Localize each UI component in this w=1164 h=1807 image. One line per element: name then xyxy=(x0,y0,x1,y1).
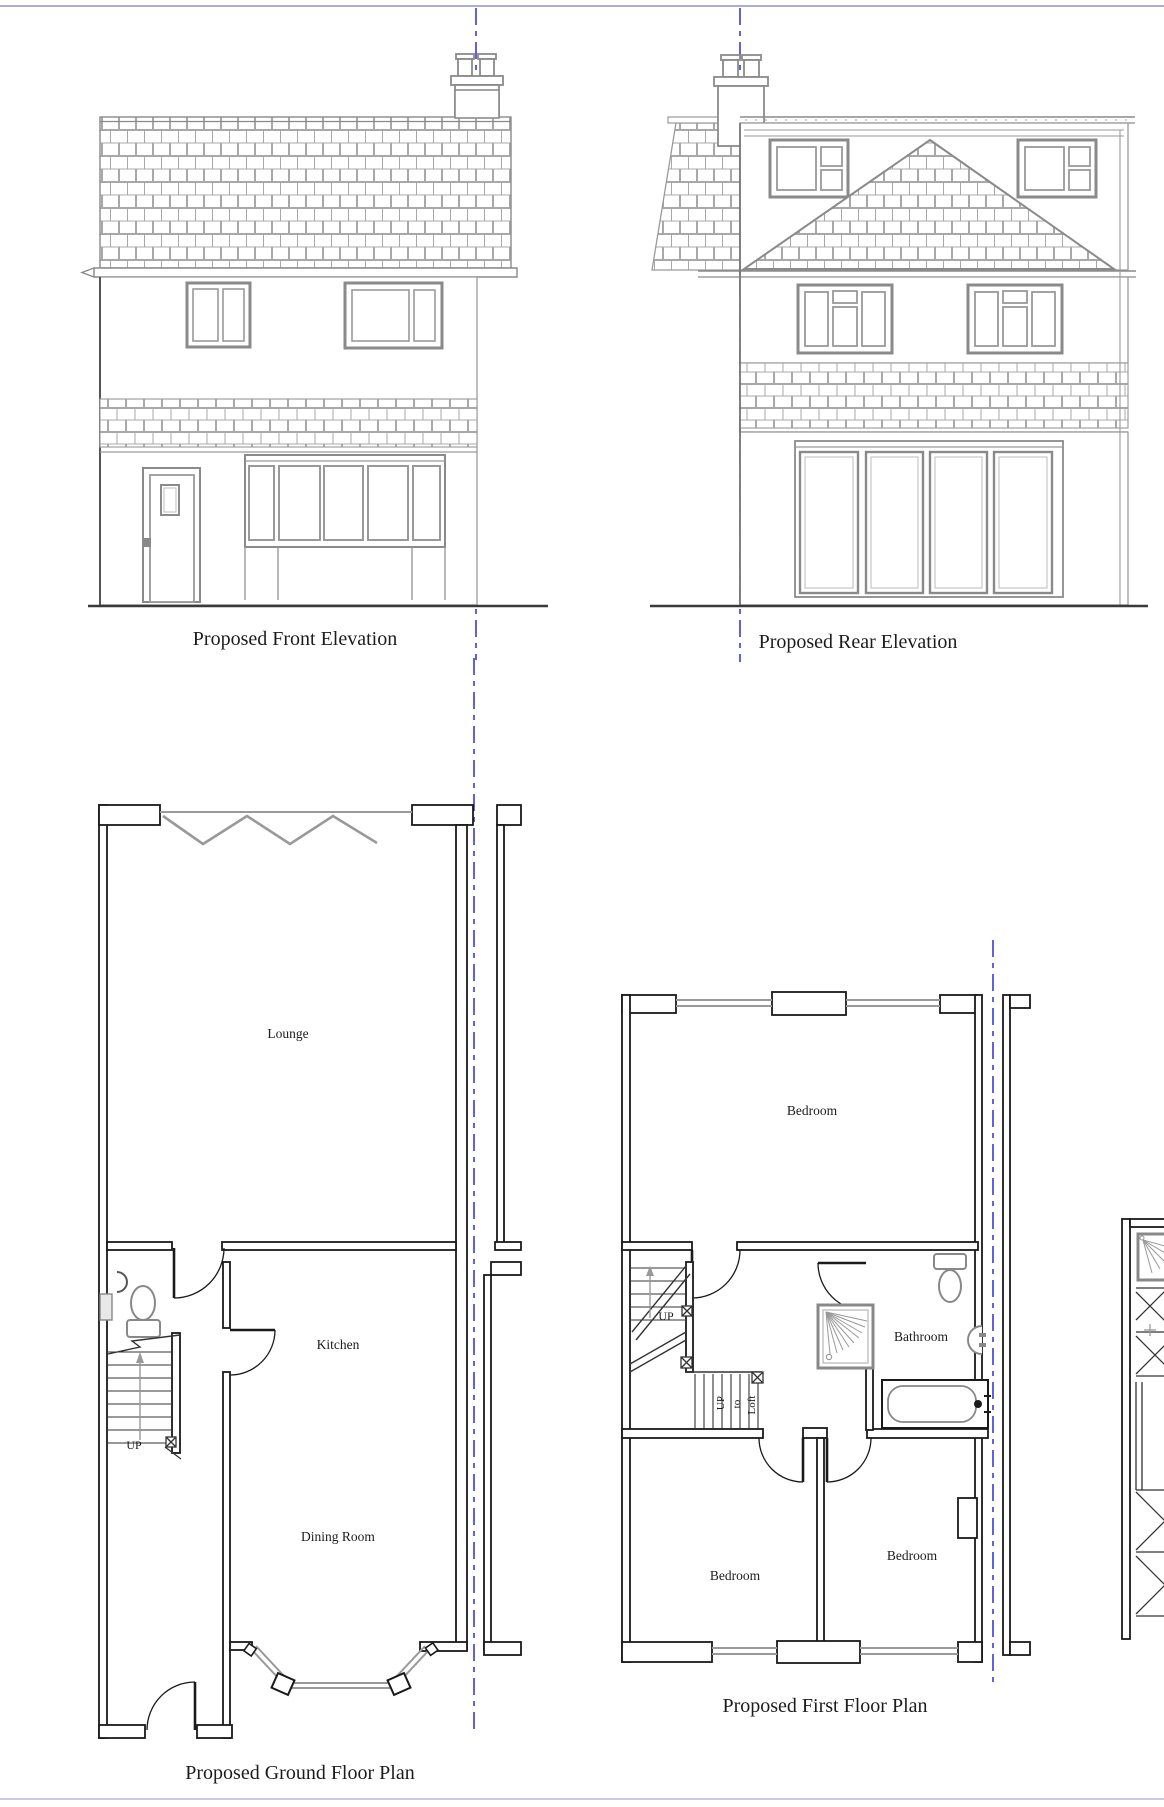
ff-left-wall xyxy=(622,995,630,1662)
partial-stairs xyxy=(1136,1288,1164,1616)
drawing-canvas xyxy=(0,0,1164,1807)
rear-elevation-title: Proposed Rear Elevation xyxy=(708,631,1008,653)
ff-stairs-up-label: UP xyxy=(646,1310,686,1323)
front-elevation-title: Proposed Front Elevation xyxy=(145,628,445,650)
room-label-kitchen: Kitchen xyxy=(288,1338,388,1353)
loft-stairs-label-up: UP xyxy=(715,1383,727,1423)
rear-loft-window-right xyxy=(1018,140,1096,197)
ground-floor-plan-drawing xyxy=(99,658,521,1738)
room-label-bedroom-front-right: Bedroom xyxy=(862,1549,962,1564)
gf-kitchen-door xyxy=(230,1330,275,1375)
ff-neighbour-wall-fragments xyxy=(1003,995,1030,1655)
room-label-bedroom-front-left: Bedroom xyxy=(685,1569,785,1584)
rear-first-floor-window-right xyxy=(968,285,1062,353)
room-label-lounge: Lounge xyxy=(238,1027,338,1042)
room-label-bathroom: Bathroom xyxy=(871,1330,971,1345)
gf-left-wall xyxy=(99,805,107,1738)
gf-bifold-doors xyxy=(160,812,412,844)
gf-wc-fixtures xyxy=(100,1272,160,1337)
rear-loft-window-left xyxy=(770,140,848,197)
front-elevation-drawing xyxy=(82,8,548,660)
gf-radiator xyxy=(100,1294,112,1320)
room-label-dining-room: Dining Room xyxy=(268,1530,408,1545)
bath-icon xyxy=(882,1380,991,1428)
ff-bedroom-left-door xyxy=(759,1438,803,1482)
front-door-handle xyxy=(144,538,151,547)
loft-stairs-label-loft: Loft xyxy=(746,1385,758,1425)
front-first-floor-window-left xyxy=(187,283,250,347)
rear-tile-band xyxy=(740,363,1128,428)
rear-glazed-doors xyxy=(795,441,1063,597)
front-chimney-stack xyxy=(455,90,499,118)
room-label-bedroom-rear: Bedroom xyxy=(762,1104,862,1119)
front-tile-band xyxy=(100,399,477,447)
ground-floor-plan-title: Proposed Ground Floor Plan xyxy=(130,1762,470,1784)
wall-light-icon xyxy=(117,1272,127,1292)
front-first-floor-window-right xyxy=(345,283,442,348)
ff-bedroom-right-door xyxy=(827,1438,871,1482)
toilet-icon-first-floor xyxy=(934,1254,966,1302)
front-eaves xyxy=(82,268,517,277)
ff-rear-bedroom-door xyxy=(692,1250,740,1298)
rear-first-floor-window-left xyxy=(798,285,892,353)
shower-icon xyxy=(818,1305,873,1368)
gf-neighbour-wall-fragments xyxy=(484,805,521,1655)
gf-party-wall xyxy=(456,825,467,1650)
drawing-sheet: Proposed Front Elevation Proposed Rear E… xyxy=(0,0,1164,1807)
ff-bedroom-divider-wall xyxy=(817,1438,824,1662)
loft-stairs-label-to: to xyxy=(731,1384,743,1424)
front-door xyxy=(143,468,200,602)
shower-icon-partial xyxy=(1138,1234,1164,1280)
gf-front-door xyxy=(147,1682,195,1730)
toilet-icon xyxy=(127,1286,160,1337)
ff-chimney-recess xyxy=(958,1498,977,1538)
first-floor-plan-title: Proposed First Floor Plan xyxy=(655,1695,995,1717)
front-roof-tiles xyxy=(100,117,511,268)
rear-elevation-drawing xyxy=(650,8,1148,662)
partial-second-floor-plan xyxy=(1122,1219,1164,1639)
gf-lounge-door xyxy=(174,1248,224,1298)
gf-stairs-up-label: UP xyxy=(114,1439,154,1452)
